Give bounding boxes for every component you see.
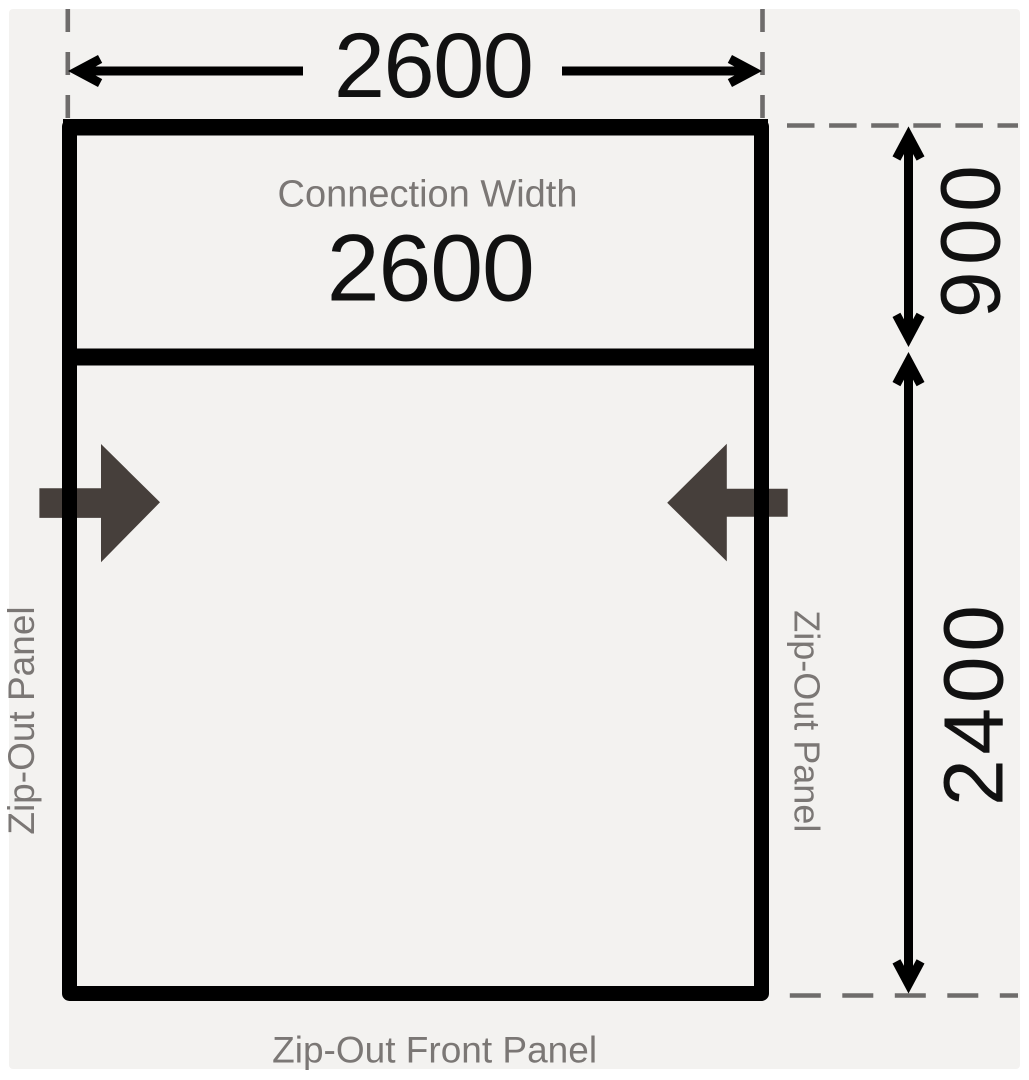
svg-text:Zip-Out Front Panel: Zip-Out Front Panel — [272, 1030, 597, 1071]
svg-text:Connection Width: Connection Width — [278, 174, 578, 216]
svg-text:900: 900 — [924, 165, 1018, 318]
svg-text:2600: 2600 — [327, 216, 535, 322]
svg-text:2600: 2600 — [334, 15, 534, 117]
svg-text:Zip-Out Panel: Zip-Out Panel — [787, 610, 828, 832]
svg-text:Zip-Out Panel: Zip-Out Panel — [1, 606, 42, 834]
